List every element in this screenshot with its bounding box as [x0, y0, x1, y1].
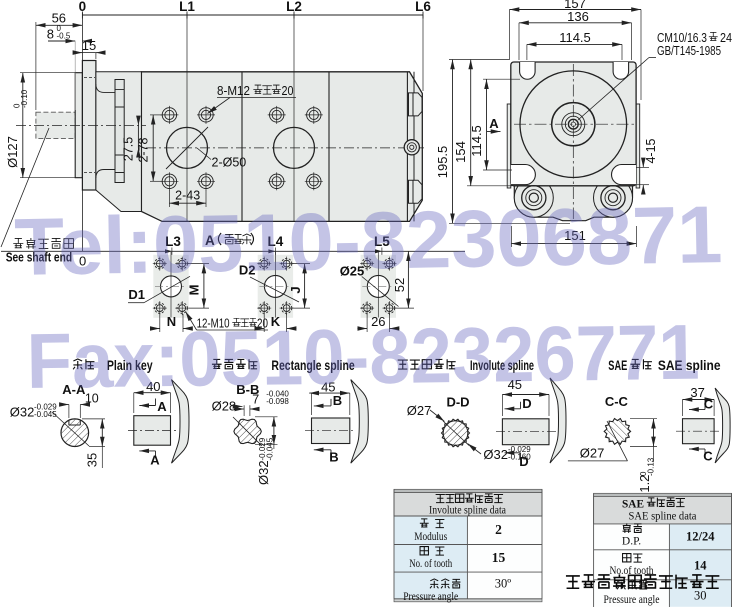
svg-text:L1: L1 — [179, 0, 195, 14]
svg-text:L6: L6 — [415, 0, 431, 14]
svg-text:Ø32: Ø32 — [10, 405, 35, 420]
svg-text:154: 154 — [453, 141, 468, 163]
svg-text:SAE: SAE — [622, 499, 644, 511]
svg-text:A: A — [489, 116, 499, 131]
svg-text:4-15: 4-15 — [644, 138, 658, 163]
svg-text:A: A — [150, 453, 160, 468]
svg-text:C: C — [703, 449, 713, 464]
svg-text:35: 35 — [85, 453, 100, 467]
svg-text:30: 30 — [694, 589, 707, 603]
svg-text:0: 0 — [79, 0, 87, 14]
svg-text:-0.13: -0.13 — [647, 457, 656, 476]
svg-text:Pressure angle: Pressure angle — [604, 594, 660, 606]
svg-text:Ø27: Ø27 — [407, 403, 432, 418]
svg-text:Pressure angle: Pressure angle — [403, 591, 458, 603]
svg-text:-0.10: -0.10 — [20, 89, 29, 108]
svg-text:195.5: 195.5 — [435, 146, 450, 179]
svg-text:Ø27: Ø27 — [580, 446, 605, 461]
svg-text:15: 15 — [82, 38, 96, 53]
svg-text:30º: 30º — [495, 577, 512, 591]
svg-text:24: 24 — [720, 31, 732, 45]
svg-text:Tel:0510-82306871: Tel:0510-82306871 — [14, 190, 724, 293]
svg-text:-0.045: -0.045 — [34, 410, 57, 419]
svg-text:Ø32: Ø32 — [256, 460, 271, 485]
svg-text:Modulus: Modulus — [414, 531, 447, 543]
svg-text:136: 136 — [567, 9, 589, 24]
svg-text:114.5: 114.5 — [469, 125, 484, 157]
svg-text:2: 2 — [495, 522, 502, 537]
svg-text:-0.045: -0.045 — [266, 437, 275, 460]
svg-text:GB/T145-1985: GB/T145-1985 — [657, 44, 721, 58]
svg-text:12/24: 12/24 — [686, 530, 715, 544]
svg-text:Ø32: Ø32 — [483, 447, 508, 462]
svg-text:8-M12: 8-M12 — [217, 84, 250, 98]
svg-text:14: 14 — [694, 559, 707, 573]
svg-text:Ø127: Ø127 — [5, 136, 20, 168]
svg-text:Involute spline data: Involute spline data — [429, 505, 506, 517]
svg-text:2-Ø50: 2-Ø50 — [212, 156, 247, 170]
svg-text:B: B — [329, 450, 338, 465]
svg-text:8: 8 — [47, 27, 54, 42]
svg-text:L2: L2 — [286, 0, 302, 14]
svg-text:No. of tooth: No. of tooth — [409, 558, 452, 570]
svg-text:20: 20 — [282, 84, 294, 98]
svg-text:C: C — [704, 397, 714, 412]
svg-text:-0.5: -0.5 — [57, 32, 71, 41]
svg-text:Fax:0510-82326771: Fax:0510-82326771 — [26, 308, 700, 405]
svg-text:114.5: 114.5 — [559, 30, 591, 45]
svg-text:D: D — [519, 454, 528, 469]
svg-text:D.P.: D.P. — [622, 536, 641, 548]
svg-text:SAE spline data: SAE spline data — [629, 511, 697, 523]
svg-text:CM10/16.3: CM10/16.3 — [657, 31, 707, 45]
svg-text:15: 15 — [492, 550, 506, 565]
svg-text:27.5: 27.5 — [122, 137, 136, 161]
